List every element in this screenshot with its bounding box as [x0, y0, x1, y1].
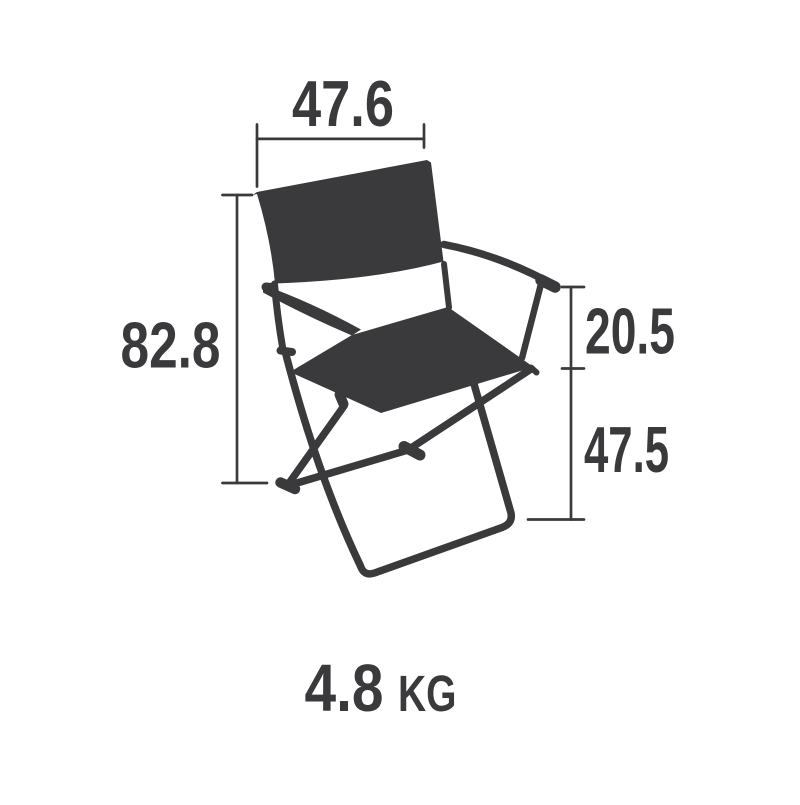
- svg-text:20.5: 20.5: [585, 295, 675, 368]
- svg-text:47.5: 47.5: [584, 413, 669, 486]
- svg-text:82.8: 82.8: [121, 309, 221, 382]
- svg-text:4.8: 4.8: [305, 651, 384, 726]
- svg-text:47.6: 47.6: [292, 67, 394, 140]
- svg-text:KG: KG: [398, 665, 457, 722]
